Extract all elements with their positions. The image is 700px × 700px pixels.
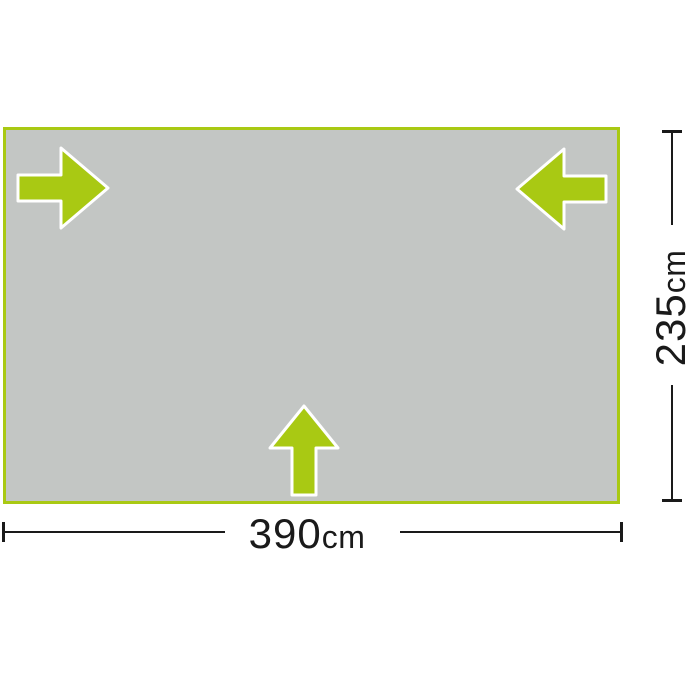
height-dimension-label: 235cm [650, 250, 692, 367]
height-line-bottom-segment [671, 385, 673, 500]
height-bottom-tick [662, 499, 682, 502]
dimension-diagram: 390cm 235cm [0, 0, 700, 700]
width-value: 390 [249, 510, 322, 557]
height-value: 235 [647, 293, 694, 366]
width-right-tick [620, 522, 623, 542]
height-line-top-segment [671, 133, 673, 225]
width-unit: cm [322, 519, 366, 555]
height-unit: cm [656, 250, 692, 294]
width-line-right-segment [400, 531, 621, 533]
width-dimension-label: 390cm [249, 513, 366, 555]
width-line-left-segment [4, 531, 225, 533]
groundsheet-rectangle [3, 127, 620, 504]
